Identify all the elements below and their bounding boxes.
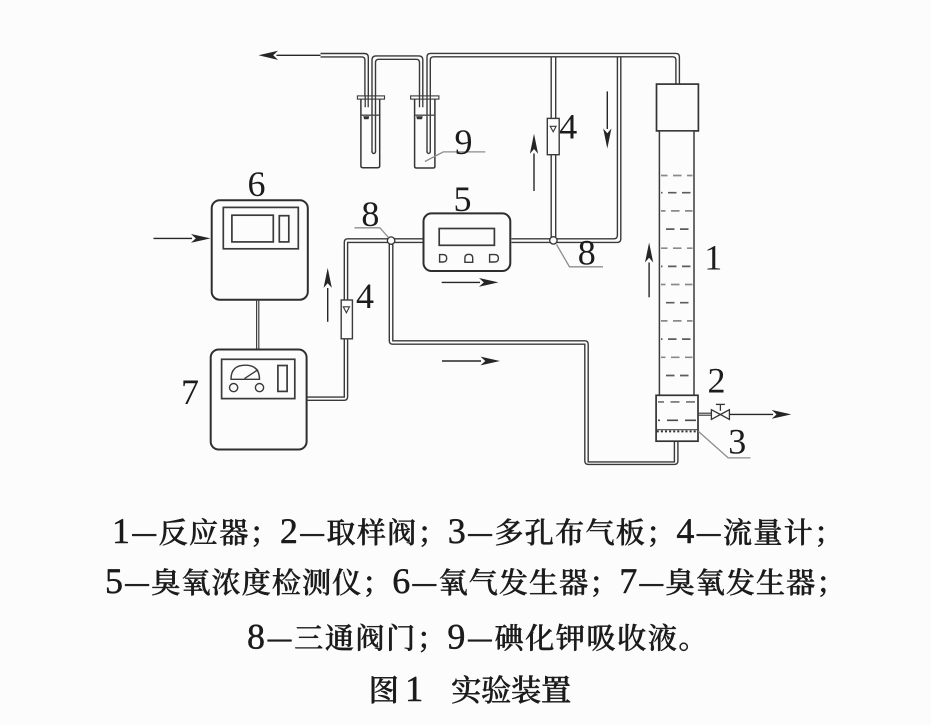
- svg-text:1: 1: [704, 238, 722, 278]
- svg-text:9: 9: [455, 122, 473, 162]
- svg-text:3: 3: [728, 422, 746, 462]
- svg-text:6: 6: [248, 164, 266, 204]
- svg-text:2: 2: [708, 361, 726, 401]
- svg-text:7: 7: [181, 372, 199, 412]
- svg-text:4: 4: [356, 276, 374, 316]
- svg-text:4: 4: [559, 107, 577, 147]
- svg-text:8: 8: [578, 233, 596, 273]
- svg-text:8: 8: [361, 194, 379, 234]
- svg-text:5: 5: [454, 179, 472, 219]
